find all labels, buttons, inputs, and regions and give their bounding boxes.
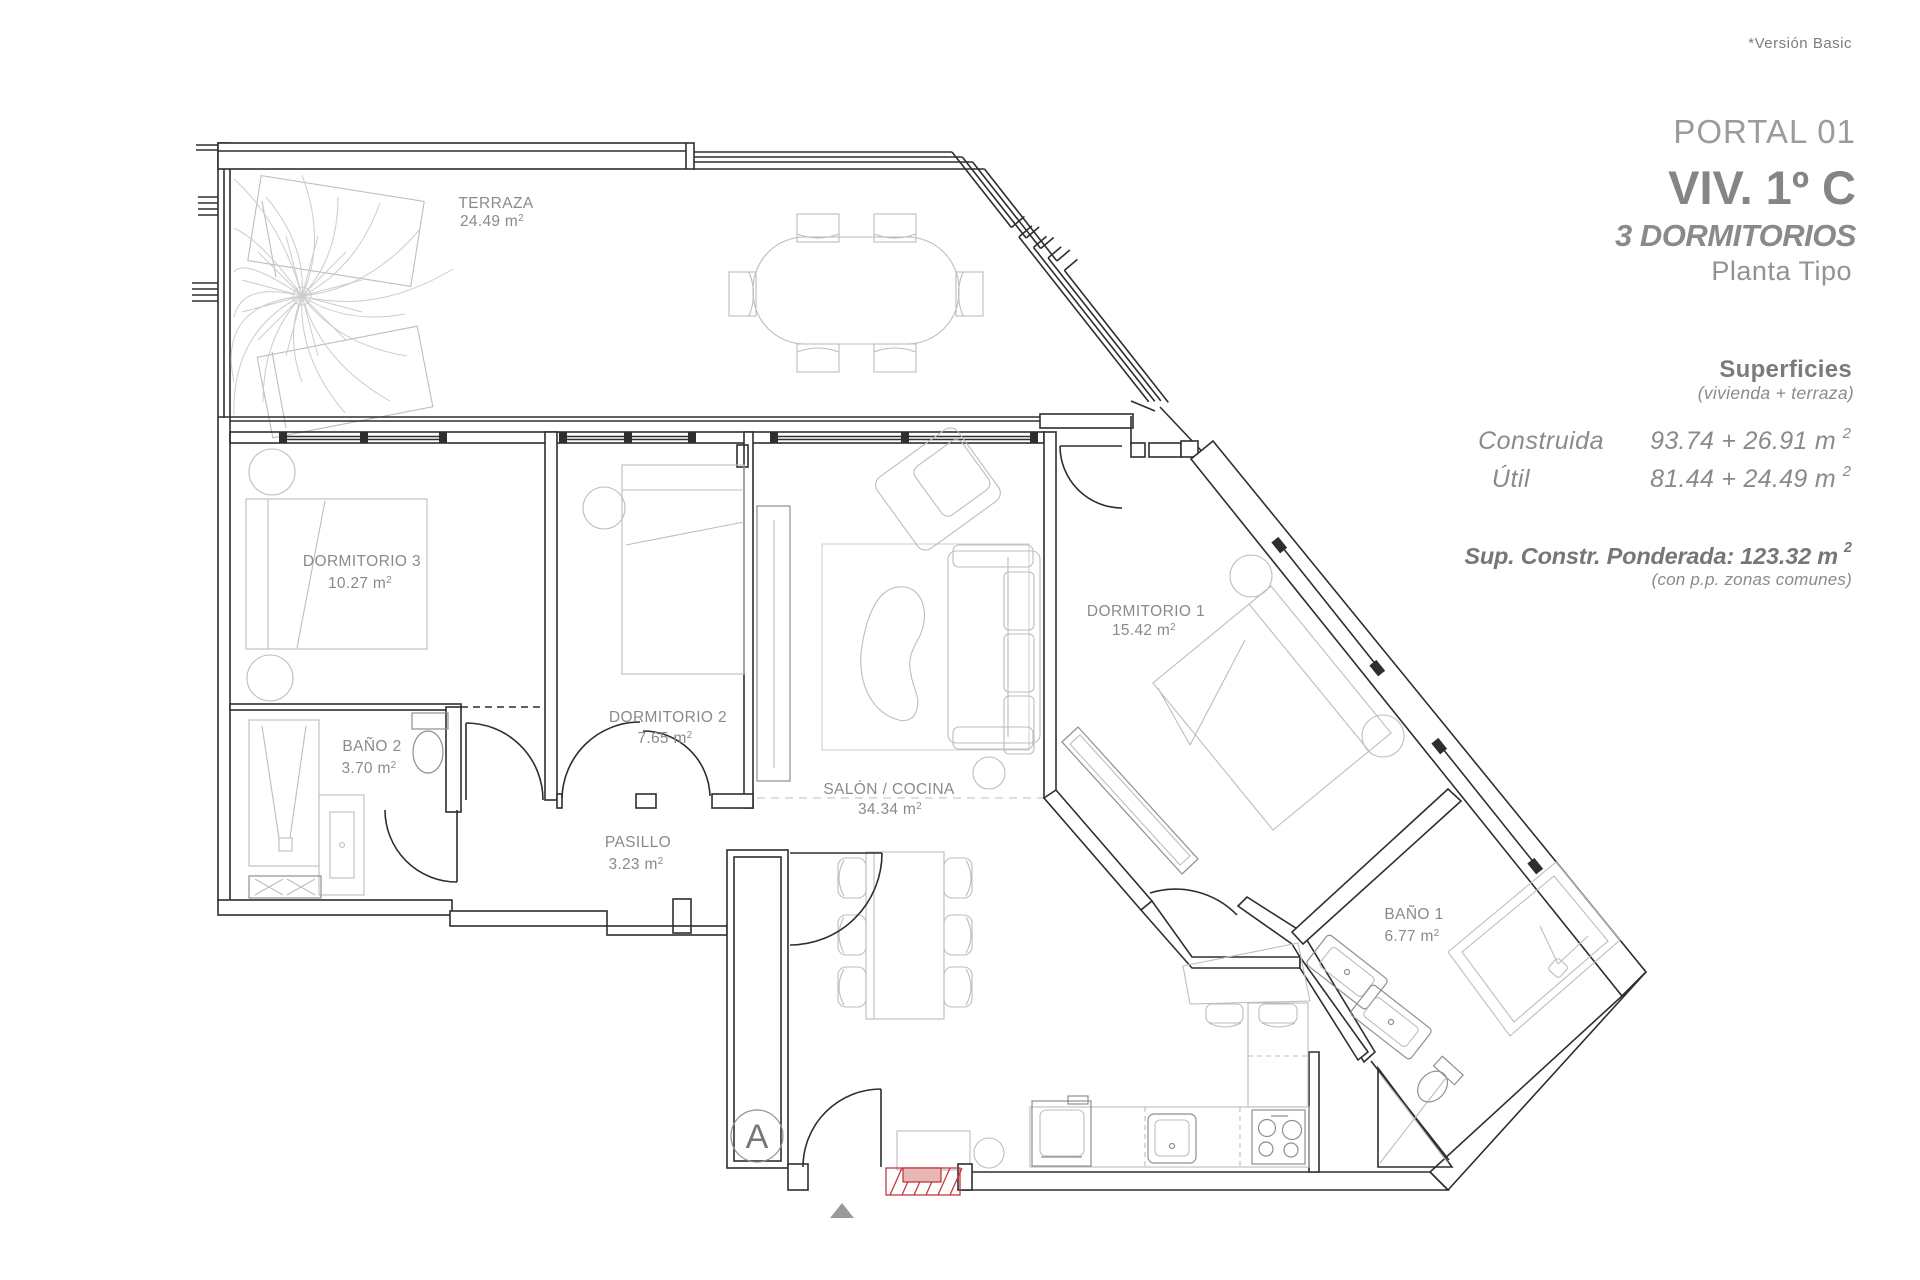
svg-text:BAÑO 1: BAÑO 1 bbox=[1384, 906, 1443, 923]
svg-text:VIV. 1º C: VIV. 1º C bbox=[1668, 161, 1856, 214]
svg-text:6.77 m2: 6.77 m2 bbox=[1384, 928, 1439, 945]
svg-text:*Versión Basic: *Versión Basic bbox=[1748, 35, 1852, 52]
svg-text:3.23 m2: 3.23 m2 bbox=[608, 856, 663, 873]
svg-text:3 DORMITORIOS: 3 DORMITORIOS bbox=[1615, 218, 1857, 253]
svg-text:93.74 + 26.91 m: 93.74 + 26.91 m bbox=[1650, 427, 1836, 455]
svg-text:SALÓN / COCINA: SALÓN / COCINA bbox=[823, 781, 955, 798]
svg-text:PORTAL 01: PORTAL 01 bbox=[1673, 113, 1856, 150]
svg-text:81.44 + 24.49 m: 81.44 + 24.49 m bbox=[1650, 465, 1836, 493]
svg-text:2: 2 bbox=[1842, 425, 1852, 442]
svg-text:(con p.p. zonas comunes): (con p.p. zonas comunes) bbox=[1652, 570, 1852, 589]
svg-text:Construida: Construida bbox=[1478, 427, 1604, 455]
svg-text:24.49 m2: 24.49 m2 bbox=[460, 213, 524, 230]
svg-text:A: A bbox=[746, 1118, 769, 1156]
svg-text:Planta Tipo: Planta Tipo bbox=[1711, 256, 1852, 286]
svg-text:Superficies: Superficies bbox=[1719, 356, 1852, 383]
svg-text:34.34 m2: 34.34 m2 bbox=[858, 801, 922, 818]
svg-text:DORMITORIO 2: DORMITORIO 2 bbox=[609, 709, 727, 726]
svg-text:DORMITORIO 1: DORMITORIO 1 bbox=[1087, 603, 1205, 620]
svg-text:PASILLO: PASILLO bbox=[605, 834, 671, 851]
svg-text:BAÑO 2: BAÑO 2 bbox=[342, 738, 401, 755]
svg-text:15.42 m2: 15.42 m2 bbox=[1112, 622, 1176, 639]
svg-text:DORMITORIO 3: DORMITORIO 3 bbox=[303, 553, 421, 570]
svg-text:(vivienda + terraza): (vivienda + terraza) bbox=[1698, 383, 1854, 403]
svg-text:2: 2 bbox=[1843, 540, 1852, 556]
svg-text:3.70 m2: 3.70 m2 bbox=[341, 760, 396, 777]
svg-text:10.27 m2: 10.27 m2 bbox=[328, 575, 392, 592]
svg-text:2: 2 bbox=[1842, 463, 1852, 480]
svg-text:Sup. Constr. Ponderada: 123.32: Sup. Constr. Ponderada: 123.32 m bbox=[1464, 543, 1838, 569]
svg-text:TERRAZA: TERRAZA bbox=[458, 195, 533, 212]
svg-text:7.65 m2: 7.65 m2 bbox=[637, 730, 692, 747]
svg-text:Útil: Útil bbox=[1492, 464, 1531, 493]
